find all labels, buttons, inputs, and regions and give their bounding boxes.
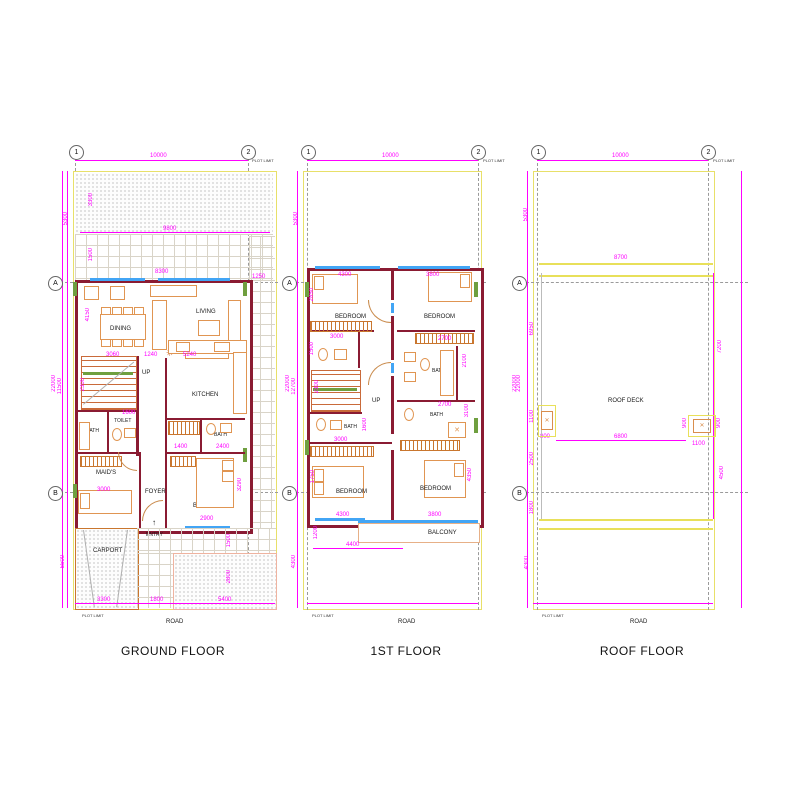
grid-line-A	[526, 282, 748, 283]
dim-first-front-setback: 5300	[293, 212, 299, 225]
first-floor-title: 1ST FLOOR	[331, 644, 481, 658]
dim-line	[527, 171, 528, 608]
dim-bedroom-tl-depth: 2850	[309, 288, 315, 301]
dim-roof-total-width: 10000	[612, 153, 629, 159]
dim-balcony-depth: 1200	[313, 526, 319, 539]
room-label-bedroom-bl: BEDROOM	[336, 489, 367, 495]
grid-bubble-B: B	[282, 486, 297, 501]
dim-bath-right-width: 2400	[216, 444, 229, 450]
dim-roof-rear-setback: 4300	[524, 556, 530, 569]
entry-walk-tiles	[137, 528, 276, 553]
room-label-up: UP	[142, 370, 150, 376]
chair	[101, 307, 111, 315]
grid-line-B	[526, 492, 748, 493]
dim-first-total-width: 10000	[382, 153, 399, 159]
door-frame	[391, 303, 394, 313]
plot-limit-label: PLOT LIMIT	[252, 158, 274, 164]
window	[398, 266, 470, 269]
drawing-sheet: 1 2 A B 10000 PLOT LIMIT 5300 22000 1150…	[0, 0, 800, 800]
kitchen-counter	[233, 352, 247, 414]
dim-bedroom-br-width: 3800	[428, 512, 441, 518]
window	[158, 278, 230, 281]
column-marker	[73, 484, 77, 498]
grid-bubble-label: A	[287, 280, 292, 287]
sofa	[152, 300, 167, 350]
dim-parapet-width: 8700	[614, 255, 627, 261]
grid-bubble-label: B	[53, 490, 58, 497]
pillow	[314, 276, 324, 290]
wall	[107, 412, 109, 452]
roof-floor-title: ROOF FLOOR	[562, 644, 722, 658]
chair	[123, 339, 133, 347]
dim-yard-width: 5400	[218, 597, 231, 603]
dim-line	[313, 548, 403, 549]
wardrobe	[170, 456, 196, 467]
kitchen-sink	[214, 342, 230, 352]
dim-carport-width: 3300	[97, 597, 110, 603]
grid-bubble-B: B	[48, 486, 63, 501]
dim-ground-total-width: 10000	[150, 153, 167, 159]
toilet-wc	[420, 358, 430, 371]
dim-right-depth: 4500	[719, 466, 725, 479]
room-label-balcony: BALCONY	[428, 530, 457, 536]
washbasin	[334, 349, 347, 360]
window	[90, 278, 145, 281]
grid-bubble-2: 2	[701, 145, 716, 160]
grid-line-2	[708, 158, 709, 610]
dim-sofa-width: 5240	[183, 352, 196, 358]
grid-bubble-label: B	[517, 490, 522, 497]
parapet-bottom	[539, 519, 713, 530]
roof-plot-boundary	[533, 171, 715, 610]
plot-limit-label: PLOT LIMIT	[82, 613, 104, 619]
room-label-toilet: TOILET	[114, 418, 131, 424]
chair	[101, 339, 111, 347]
dim-skylight-left-depth: 1100	[529, 410, 535, 423]
dim-side-offset: 1250	[252, 274, 265, 280]
column-marker	[243, 448, 247, 462]
grid-bubble-label: A	[53, 280, 58, 287]
dim-line	[297, 171, 298, 608]
dim-line	[556, 440, 686, 441]
dim-bedroom-br-depth: 4350	[467, 468, 473, 481]
skylight-left-inner: ✕	[541, 411, 553, 430]
grid-bubble-1: 1	[531, 145, 546, 160]
bathtub	[79, 422, 90, 450]
pillow	[222, 471, 234, 482]
dim-wardrobe-width: 3000	[330, 334, 343, 340]
road-label: ROAD	[398, 619, 415, 625]
grid-bubble-2: 2	[241, 145, 256, 160]
garden-hatch	[75, 173, 273, 234]
column-marker	[73, 282, 77, 296]
grid-bubble-label: A	[517, 280, 522, 287]
dim-bedroom-bl-width: 4300	[336, 512, 349, 518]
plot-limit-label: PLOT LIMIT	[483, 158, 505, 164]
wall	[200, 418, 202, 452]
chair	[123, 307, 133, 315]
dim-walkway: 1500	[88, 248, 94, 261]
dim-living-width: 8300	[155, 269, 168, 275]
dim-ground-front-setback: 5300	[63, 212, 69, 225]
window	[315, 266, 380, 269]
washbasin	[404, 352, 416, 362]
room-label-maids: MAID'S	[96, 470, 116, 476]
chair	[112, 339, 122, 347]
dim-rear-inner: 1800	[529, 501, 535, 514]
room-label-roof-deck: ROOF DECK	[608, 398, 644, 404]
wall	[391, 450, 394, 522]
grid-bubble-2: 2	[471, 145, 486, 160]
dim-ground-rear-setback: 5500	[60, 555, 66, 568]
dim-bath-left-width: 3000	[334, 437, 347, 443]
stove	[176, 342, 190, 352]
dim-line	[80, 232, 270, 233]
bathtub	[440, 350, 454, 396]
toilet-wc	[404, 408, 414, 421]
dim-skylight-right-depth2: 900	[716, 418, 722, 428]
grid-bubble-label: 1	[75, 149, 79, 156]
washbasin	[404, 372, 416, 382]
room-label-bedroom-br: BEDROOM	[420, 486, 451, 492]
column-marker	[474, 282, 478, 297]
dim-bath-depth: 1500	[309, 342, 315, 355]
room-label-foyer: FOYER	[145, 489, 166, 495]
walkway-tiles-top	[75, 234, 273, 280]
room-label-bedroom-tr: BEDROOM	[424, 314, 455, 320]
grid-bubble-label: 1	[307, 149, 311, 156]
dim-toilet-width: 1600	[122, 410, 135, 416]
pillow	[460, 274, 470, 288]
grid-bubble-1: 1	[69, 145, 84, 160]
dim-ground-inner-depth: 11500	[57, 378, 63, 394]
column-marker	[243, 282, 247, 296]
grid-bubble-label: B	[287, 490, 292, 497]
dim-bath-tr-width: 2700	[438, 402, 451, 408]
room-label-bath-br: BATH	[430, 412, 443, 418]
grid-line-1	[537, 158, 538, 610]
toilet-wc	[316, 418, 326, 431]
chair	[112, 307, 122, 315]
dim-line	[75, 603, 275, 604]
wall	[165, 452, 245, 454]
dim-first-rear-setback: 4300	[291, 555, 297, 568]
dim-line	[537, 160, 708, 161]
dim-bath-br-depth: 3100	[464, 404, 470, 417]
dim-roof-total-depth: 22000	[516, 375, 522, 392]
dim-line	[67, 171, 68, 608]
column-marker	[474, 418, 478, 433]
grid-bubble-A: A	[282, 276, 297, 291]
dim-bath-tr-depth: 2100	[462, 354, 468, 367]
dim-hall-width: 1240	[144, 352, 157, 358]
dim-roof-front-setback: 5300	[523, 208, 529, 221]
wardrobe	[310, 446, 374, 457]
plot-limit-label: PLOT LIMIT	[542, 613, 564, 619]
chair	[134, 339, 144, 347]
dim-mid-depth: 2500	[529, 452, 535, 465]
dim-bedroom-depth: 3290	[237, 478, 243, 491]
wardrobe	[310, 321, 372, 332]
grid-bubble-A: A	[48, 276, 63, 291]
dim-bedroom-width: 2900	[200, 516, 213, 522]
wall	[310, 442, 392, 444]
wall	[310, 412, 362, 414]
dim-right-front: 7200	[717, 340, 723, 353]
wall	[397, 400, 475, 402]
dim-garden-depth: 3300	[88, 193, 94, 206]
grid-bubble-B: B	[512, 486, 527, 501]
room-label-dining: DINING	[110, 326, 131, 332]
room-label-living: LIVING	[196, 309, 216, 315]
wall	[397, 330, 475, 332]
shower: ✕	[448, 422, 466, 438]
toilet-wc	[112, 428, 122, 441]
wall	[165, 358, 167, 528]
grid-bubble-label: 2	[477, 149, 481, 156]
dim-deck-span: 6800	[614, 434, 627, 440]
wall	[456, 346, 458, 400]
room-label-up: UP	[372, 398, 380, 404]
grid-bubble-label: 2	[247, 149, 251, 156]
grid-bubble-label: 1	[537, 149, 541, 156]
washbasin	[220, 423, 232, 433]
dim-line	[307, 603, 478, 604]
room-label-bath-left: BATH	[344, 424, 357, 430]
dim-skylight-right-depth: 900	[682, 418, 688, 428]
washbasin	[124, 428, 136, 438]
dim-entry-depth: 1500	[226, 534, 232, 547]
dim-bath-left-depth: 1600	[362, 418, 368, 431]
dim-stair-depth: 2300	[80, 378, 86, 391]
grid-bubble-label: 2	[707, 149, 711, 156]
grid-bubble-A: A	[512, 276, 527, 291]
wall	[358, 332, 360, 368]
dim-bedroom-tr-width: 3800	[426, 272, 439, 278]
wardrobe	[400, 440, 460, 451]
dim-bath-width: 1400	[174, 444, 187, 450]
dim-line	[741, 171, 742, 608]
deck-right-edge	[713, 273, 714, 519]
deck-left-edge	[541, 273, 542, 519]
chair	[134, 307, 144, 315]
ground-floor-title: GROUND FLOOR	[93, 644, 253, 658]
balcony-edge	[358, 523, 480, 543]
dim-bedroom-bl-depth: 1750	[310, 470, 316, 483]
dim-entry-width: 1800	[150, 597, 163, 603]
entry-arrow: ↑	[152, 520, 156, 526]
coffee-table	[198, 320, 220, 336]
wall	[391, 376, 394, 434]
road-label: ROAD	[166, 619, 183, 625]
room-label-kitchen: KITCHEN	[192, 392, 218, 398]
skylight-right-inner: ✕	[693, 419, 711, 433]
pillow	[454, 463, 464, 477]
pillow	[222, 460, 234, 471]
wall	[391, 268, 394, 300]
dim-bedroom-tl-width: 4300	[338, 272, 351, 278]
dim-wardrobe-tr-width: 2700	[438, 336, 451, 342]
stair-tread-marker	[83, 372, 133, 375]
dim-line	[307, 160, 478, 161]
dim-skylight-right-offset: 1100	[692, 441, 705, 447]
wall	[165, 418, 245, 420]
sofa	[150, 285, 197, 297]
plot-limit-label: PLOT LIMIT	[713, 158, 735, 164]
laundry-counter	[168, 421, 200, 435]
column-marker	[305, 440, 309, 455]
wall	[139, 452, 141, 528]
plot-limit-label: PLOT LIMIT	[312, 613, 334, 619]
wardrobe	[80, 456, 122, 467]
toilet-wc	[318, 348, 328, 361]
dim-stair-depth: 2300	[314, 380, 320, 393]
dim-yard-depth: 2800	[226, 570, 232, 583]
dim-deck-front: 6950	[529, 322, 535, 335]
door-frame	[391, 363, 394, 373]
dim-balcony-width: 4400	[346, 542, 359, 548]
dim-dining-width: 3060	[106, 352, 119, 358]
room-label-bedroom-tl: BEDROOM	[335, 314, 366, 320]
room-label-carport: CARPORT	[92, 548, 123, 554]
wall	[391, 316, 394, 360]
dim-garden-width: 9800	[163, 226, 176, 232]
washbasin	[330, 420, 342, 430]
pillow	[80, 493, 90, 509]
parapet-top	[539, 263, 713, 277]
dim-line	[75, 160, 248, 161]
dim-maids-width: 3000	[97, 487, 110, 493]
dim-first-inner-depth: 12700	[291, 378, 297, 395]
armchair	[110, 286, 125, 300]
road-label: ROAD	[630, 619, 647, 625]
pillow	[314, 482, 324, 495]
dim-line	[533, 603, 713, 604]
dim-living-depth: 4150	[85, 308, 91, 321]
grid-bubble-1: 1	[301, 145, 316, 160]
armchair	[84, 286, 99, 300]
toilet-wc	[206, 423, 216, 435]
